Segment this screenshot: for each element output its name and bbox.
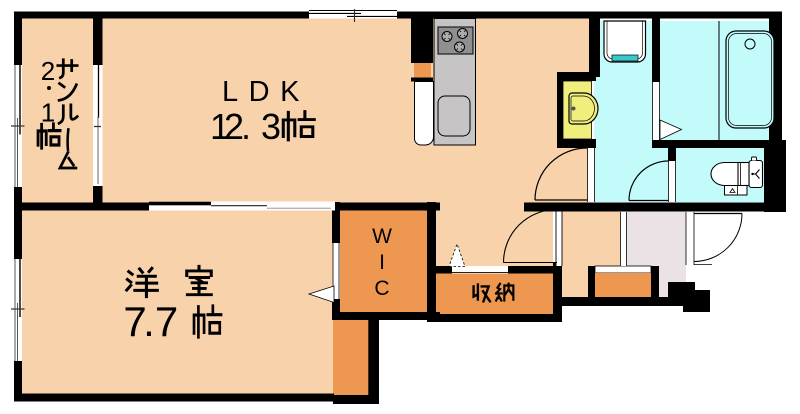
- svg-text:.: .: [241, 106, 251, 147]
- svg-text:W: W: [372, 225, 392, 248]
- svg-text:I: I: [379, 251, 385, 274]
- svg-text:3: 3: [261, 106, 281, 147]
- svg-text:2: 2: [41, 56, 55, 86]
- svg-text:.: .: [143, 298, 155, 345]
- svg-text:7: 7: [155, 298, 178, 345]
- svg-text:LDK: LDK: [222, 76, 310, 108]
- svg-text:C: C: [374, 277, 389, 300]
